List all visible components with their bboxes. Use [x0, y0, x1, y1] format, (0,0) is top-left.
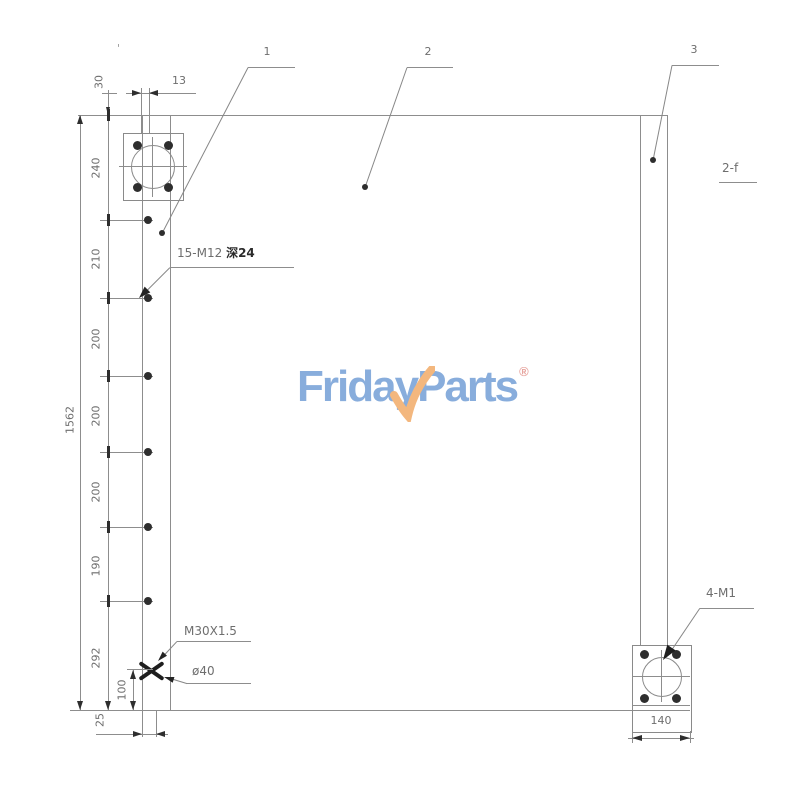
top-flange-crosshair-v — [152, 137, 153, 197]
overall-dim-arrow-bottom — [77, 701, 83, 710]
oil-cooler-technical-drawing: 1562 30 13 ' 240 210 200 200 200 190 292 — [0, 0, 800, 800]
chain-tick — [107, 214, 110, 226]
tapped-holes-underline — [170, 267, 294, 268]
chain-dim-label-200c: 200 — [90, 482, 103, 503]
callout-2-label: 2 — [425, 45, 432, 58]
callout-2-leader — [365, 67, 408, 187]
callout-3-overline — [672, 65, 719, 66]
right-plate-inner-line — [640, 115, 641, 645]
chain-dim-label-240: 240 — [90, 158, 103, 179]
stem-left-line — [141, 88, 142, 133]
chain-tick — [107, 595, 110, 607]
chain-tick — [107, 521, 110, 533]
logo-registered-mark: ® — [519, 364, 527, 379]
top-flange-crosshair-h — [119, 166, 187, 167]
flange-width-label: 140 — [651, 714, 672, 727]
chain-tick — [107, 109, 110, 121]
callout-3-leader — [653, 65, 673, 160]
top-flange-bolt — [133, 183, 142, 192]
overall-dim-arrow-top — [77, 115, 83, 124]
flange-holes-underline — [700, 608, 754, 609]
top-edge-line — [78, 115, 667, 116]
left-edge-line — [142, 115, 143, 710]
hole-dot — [144, 448, 152, 456]
stub-dim-label: 30 — [93, 75, 106, 89]
top-flange-bolt — [164, 141, 173, 150]
top-flange-bolt — [133, 141, 142, 150]
logo-text-frida: Frida — [297, 362, 395, 412]
callout-1-overline — [248, 67, 295, 68]
tapped-holes-note: 15-M12 深24 — [177, 244, 255, 261]
fridayparts-watermark: Frida y Parts ® — [297, 362, 527, 412]
stray-tick-mark: ' — [117, 42, 120, 55]
section-note-underline — [719, 182, 757, 183]
bottom-flange-bolt — [640, 650, 649, 659]
port-height-arrow-top — [130, 670, 136, 679]
port-thread-underline — [177, 641, 251, 642]
port-height-arrow-bottom — [130, 701, 136, 710]
callout-2-overline — [407, 67, 453, 68]
flange-width-ext-right — [690, 731, 691, 743]
bottom-edge-line — [70, 710, 690, 711]
logo-letter-y: y — [395, 362, 417, 412]
callout-1-label: 1 — [264, 45, 271, 58]
chain-tick — [107, 446, 110, 458]
chain-tick — [107, 292, 110, 304]
chain-dim-label-292: 292 — [90, 648, 103, 669]
chain-dim-label-210: 210 — [90, 249, 103, 270]
chain-dim-arrow-bottom — [105, 701, 111, 710]
chain-dim-label-190: 190 — [90, 556, 103, 577]
flange-holes-label: 4-M1 — [706, 586, 736, 600]
overall-dim-line — [80, 115, 81, 710]
section-note-label: 2-f — [722, 161, 738, 175]
hole-dot — [144, 372, 152, 380]
bottom-stem-left-line — [142, 710, 143, 737]
stub-dim-tick — [102, 93, 117, 94]
bottom-flange-bolt — [672, 694, 681, 703]
left-plate-inner-line — [170, 115, 171, 710]
chain-dim-line — [108, 90, 109, 710]
hole-dot — [144, 523, 152, 531]
stem-dim-arrow-left — [132, 90, 141, 96]
hole-dot — [144, 216, 152, 224]
chain-dim-label-200b: 200 — [90, 406, 103, 427]
top-flange-bolt — [164, 183, 173, 192]
stem-dim-label: 13 — [172, 74, 186, 87]
tapped-holes-count: 15-M12 — [177, 246, 222, 260]
flange-width-arrow-left — [632, 735, 642, 741]
bottom-offset-label: 25 — [94, 713, 107, 727]
bottom-flange-bolt — [640, 694, 649, 703]
bottom-stem-arrow-right — [156, 731, 165, 737]
bottom-flange-inner-line — [632, 705, 690, 706]
bottom-flange-port-circle — [642, 657, 682, 697]
bottom-stem-arrow-left — [133, 731, 142, 737]
callout-3-end-dot — [650, 157, 656, 163]
callout-1-end-dot — [159, 230, 165, 236]
chain-tick — [107, 370, 110, 382]
hole-dot — [144, 597, 152, 605]
port-diameter-arrow — [163, 674, 174, 683]
chain-dim-label-200a: 200 — [90, 329, 103, 350]
port-thread-label: M30X1.5 — [184, 624, 237, 638]
callout-2-end-dot — [362, 184, 368, 190]
port-diameter-label: ø40 — [192, 664, 215, 678]
tapped-holes-depth: 深24 — [226, 246, 255, 260]
flange-width-arrow-right — [680, 735, 690, 741]
port-thread-arrow — [156, 652, 167, 663]
logo-check-swoosh-icon — [389, 366, 435, 422]
port-height-label: 100 — [116, 680, 129, 701]
callout-3-label: 3 — [691, 43, 698, 56]
stem-dim-arrow-right — [149, 90, 158, 96]
port-diameter-underline — [187, 683, 251, 684]
right-edge-line — [667, 115, 668, 645]
overall-dim-label: 1562 — [64, 406, 77, 434]
